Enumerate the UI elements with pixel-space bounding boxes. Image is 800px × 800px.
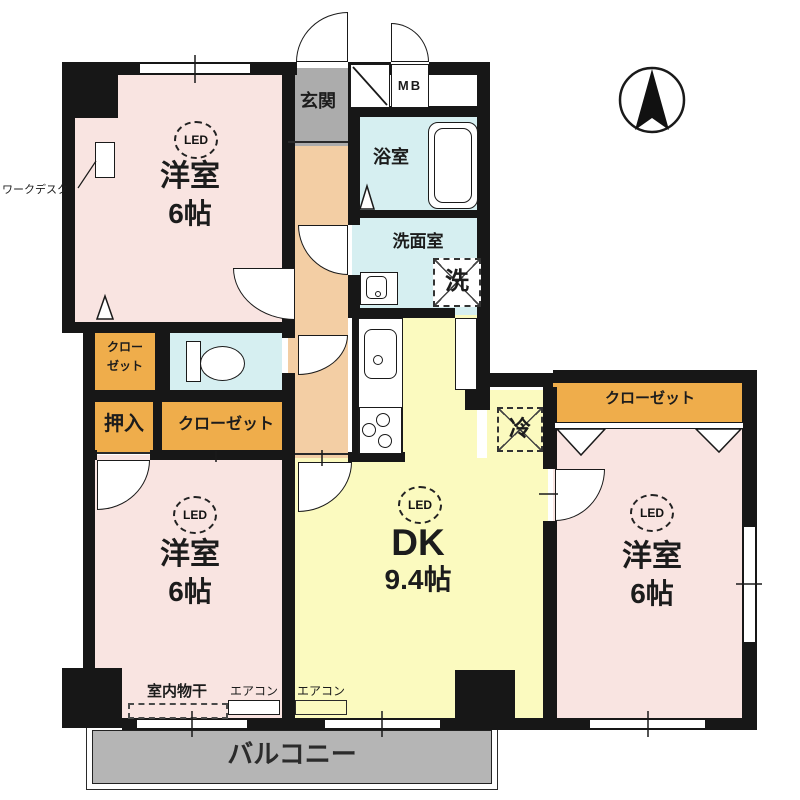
aircon-unit (228, 700, 280, 715)
kitchen-sink (364, 329, 397, 379)
floor-plan: 洗 冷 LED LED LED LED 洋室 6帖 洋室 6帖 洋室 6帖 DK… (0, 0, 800, 800)
window (140, 62, 250, 75)
toilet-tank (186, 341, 201, 382)
wall (543, 521, 557, 730)
washroom-sink-drain (375, 291, 381, 297)
closet-upper-label: クロー ゼット (95, 338, 155, 376)
bedroom-bottom-left-size: 6帖 (120, 577, 260, 608)
wall (352, 308, 455, 318)
led-light-badge: LED (398, 486, 442, 524)
window (590, 718, 705, 730)
dk-name: DK (368, 523, 468, 564)
wall (440, 718, 590, 730)
led-light-badge: LED (174, 121, 218, 159)
stove-burner (362, 423, 376, 437)
bedroom-top-left-size: 6帖 (120, 199, 260, 230)
entrance-door-leaf-box (350, 64, 390, 108)
bedroom-right-name: 洋室 (582, 540, 722, 573)
washroom-label: 洗面室 (376, 233, 460, 252)
wall (455, 670, 515, 718)
meter-box-label: MB (391, 79, 429, 93)
wall (477, 62, 490, 387)
led-light-badge: LED (630, 494, 674, 532)
wall (348, 117, 360, 225)
wall (62, 75, 75, 333)
fridge-label: 冷 (509, 417, 531, 441)
oshiire-label: 押入 (95, 413, 153, 435)
wall (62, 668, 122, 728)
wall (155, 333, 170, 390)
wall (83, 450, 97, 460)
door-lintel (295, 453, 348, 455)
wall (352, 210, 484, 218)
entrance-door-arc (296, 12, 348, 62)
wall (490, 373, 553, 387)
window (137, 718, 247, 730)
door-lintel (97, 452, 150, 454)
wall (553, 370, 757, 383)
bedroom-top-left-name: 洋室 (120, 160, 260, 193)
kitchen-cabinet (455, 318, 477, 390)
wall (62, 62, 140, 75)
closet-upper-line2: ゼット (107, 359, 143, 373)
entrance-label: 玄関 (288, 92, 348, 112)
wall (705, 718, 757, 730)
wall (150, 450, 290, 460)
indoor-laundry-box (128, 703, 228, 719)
dk-size: 9.4帖 (358, 565, 478, 596)
kitchen-faucet (373, 355, 383, 365)
indoor-laundry-label: 室内物干 (126, 684, 228, 701)
aircon-left-label: エアコン (227, 685, 281, 698)
wall (83, 460, 95, 668)
aircon-dk-label: エアコン (294, 685, 348, 698)
compass-north-arrow-icon (635, 69, 669, 130)
stove-burner (378, 434, 392, 448)
work-desk (95, 142, 115, 178)
wall (62, 322, 290, 333)
wall (465, 387, 490, 410)
window (325, 718, 440, 730)
meter-box-door-arc (391, 23, 429, 62)
compass-circle-icon (620, 68, 684, 132)
bathtub-inner (434, 128, 472, 203)
corridor-floor (288, 146, 348, 462)
closet-lower-label: クローゼット (162, 416, 290, 434)
closet-right-label: クローゼット (565, 391, 735, 408)
wall (83, 390, 290, 402)
window (742, 527, 757, 642)
wall (742, 370, 757, 527)
fridge-box: 冷 (497, 407, 543, 452)
bedroom-bottom-left-name: 洋室 (120, 538, 260, 571)
wall (742, 642, 757, 730)
bathroom-label: 浴室 (356, 148, 426, 168)
led-light-badge: LED (173, 496, 217, 534)
wall (247, 718, 325, 730)
closet-upper-line1: クロー (107, 340, 143, 354)
aircon-unit (295, 700, 347, 715)
wall (153, 402, 162, 452)
work-desk-label: ワークデスク (2, 184, 86, 196)
washer-box: 洗 (433, 258, 481, 307)
bedroom-right-size: 6帖 (582, 579, 722, 610)
entrance-step-line (288, 141, 348, 143)
wall (122, 718, 137, 730)
toilet-bowl (200, 346, 245, 381)
balcony-label: バルコニー (92, 740, 492, 769)
stove-burner (376, 413, 390, 427)
closet-right-front-rail (555, 422, 743, 429)
washer-label: 洗 (445, 269, 469, 295)
